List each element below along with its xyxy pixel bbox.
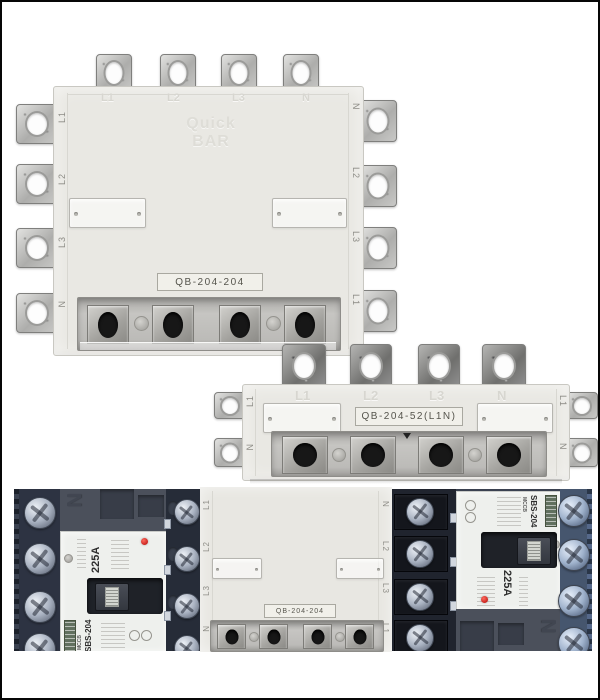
fine-print-lines — [519, 576, 528, 606]
embossed-terminal-label: L3 — [429, 388, 444, 403]
drop-shadow — [250, 479, 562, 484]
clear-terminal-cover — [336, 558, 384, 579]
busbar-contact — [152, 305, 194, 344]
molded-mark: N — [536, 619, 559, 633]
embossed-terminal-label: L1 — [295, 388, 310, 403]
terminal-screw — [558, 495, 590, 527]
busbar-contact — [284, 305, 326, 344]
terminal-window — [164, 611, 171, 621]
busbar-contact — [303, 624, 332, 649]
contact-hole — [295, 312, 315, 338]
terminal-lug — [16, 164, 58, 204]
breaker-toggle — [87, 578, 163, 614]
embossed-terminal-label: L1 — [101, 92, 114, 104]
busbar-contact — [87, 305, 129, 344]
edge-label: L2 — [202, 541, 211, 552]
edge-label: L1 — [202, 499, 211, 510]
lug-hole — [572, 442, 592, 463]
model-number: QB-204-204 — [175, 277, 244, 288]
contact-hole — [497, 443, 521, 467]
edge-label: L3 — [57, 236, 67, 248]
toggle-sticker — [105, 587, 119, 607]
cover-screw — [338, 212, 342, 216]
lug-hole — [367, 235, 390, 262]
terminal-window — [164, 519, 171, 529]
cover-screw — [74, 212, 78, 216]
lug-hole — [104, 60, 125, 86]
cover-screw — [216, 568, 219, 571]
contact-hole — [429, 443, 453, 467]
contact-channel — [77, 297, 341, 351]
fine-print-lines — [77, 538, 86, 568]
embossed-terminal-label: L2 — [167, 92, 180, 104]
fine-print-lines — [101, 620, 125, 648]
contact-hole — [361, 443, 385, 467]
cover-screw — [340, 568, 343, 571]
terminal-lug — [359, 165, 397, 207]
indicator-dot — [335, 632, 345, 642]
cover-screw — [377, 568, 380, 571]
toggle-sticker — [527, 541, 541, 561]
terminal-lug — [359, 290, 397, 332]
lug-hole — [168, 60, 189, 86]
brand-watermark-line1: Quick — [166, 115, 256, 133]
panel-seam — [348, 93, 349, 349]
type-label: MCCB — [521, 497, 527, 525]
molded-step — [498, 623, 524, 645]
fine-print-lines — [111, 537, 129, 569]
model-number: QB-204-204 — [276, 608, 324, 615]
molded-housing-top: N — [60, 489, 166, 531]
brand-watermark-line2: BAR — [166, 133, 256, 151]
terminal-lug — [482, 344, 526, 388]
edge-label: N — [381, 501, 390, 508]
certification-mark — [141, 630, 152, 641]
lug-hole — [25, 235, 49, 261]
contact-hole — [311, 629, 324, 644]
panel-screw — [64, 554, 73, 563]
model-label-plate: QB-204-52(L1N) — [355, 407, 463, 426]
contact-hole — [293, 443, 317, 467]
model-label: SBS-204 — [529, 495, 538, 529]
panel-seam — [67, 93, 68, 349]
certification-mark — [129, 630, 140, 641]
lug-hole — [220, 396, 240, 416]
indicator-dot — [468, 448, 482, 462]
busbar-contact — [418, 436, 464, 474]
cover-screw — [255, 568, 258, 571]
terminal-screw — [24, 497, 56, 529]
type-label: MCCB — [77, 622, 83, 650]
lug-hole — [291, 60, 312, 86]
terminal-screw — [24, 543, 56, 575]
model-label-plate: QB-204-204 — [264, 604, 336, 618]
brand-chip — [545, 495, 557, 527]
breaker-face-panel: SBS-204 MCCB 225A — [456, 491, 562, 611]
contact-hole — [353, 629, 366, 644]
edge-label: L1 — [558, 395, 568, 407]
molded-step — [138, 495, 164, 517]
terminal-screw — [406, 624, 434, 651]
mccb-breaker-left-photo: N 225A MCCB SBS-204 — [14, 489, 200, 651]
indicator-dot — [134, 316, 149, 331]
indicator-dot — [249, 632, 259, 642]
busbar-contact — [345, 624, 374, 649]
terminal-lug — [418, 344, 460, 388]
trip-indicator — [481, 596, 488, 603]
embossed-terminal-label: N — [302, 92, 310, 104]
terminal-lug — [359, 227, 397, 269]
busbar-contact — [350, 436, 396, 474]
lug-hole — [359, 352, 383, 380]
terminal-lug — [282, 344, 326, 388]
edge-label: L3 — [202, 585, 211, 596]
product-photo-collage: L1 L2 L3 N Quick BAR L1 L2 L3 N N L2 L3 … — [0, 0, 600, 700]
contact-channel — [271, 431, 547, 477]
terminal-screw — [174, 499, 200, 525]
molded-mark: N — [64, 493, 87, 507]
terminal-screw — [558, 585, 590, 617]
clear-terminal-cover — [212, 558, 262, 579]
clear-terminal-cover — [69, 198, 146, 228]
indicator-dot — [266, 316, 281, 331]
busbar-cover-body: L1 L2 L3 N L1 N L1 N QB-204-52(L1N) — [242, 384, 570, 481]
cover-screw — [332, 417, 336, 421]
model-label: SBS-204 — [84, 618, 93, 651]
lug-hole — [229, 60, 250, 86]
terminal-lug — [16, 104, 58, 144]
lug-hole — [367, 173, 390, 200]
clear-terminal-cover — [272, 198, 347, 228]
edge-label: N — [57, 300, 67, 308]
terminal-screw — [406, 583, 434, 611]
edge-label: L3 — [381, 583, 390, 594]
terminal-lug — [359, 100, 397, 142]
edge-label: L2 — [381, 541, 390, 552]
cover-screw — [544, 417, 548, 421]
busbar-contact — [259, 624, 288, 649]
edge-label: L3 — [351, 231, 361, 243]
lug-hole — [492, 352, 516, 380]
molded-housing-bottom: N — [456, 609, 560, 651]
certification-mark — [465, 500, 476, 511]
model-label-plate: QB-204-204 — [157, 273, 263, 291]
busbar-contact — [282, 436, 328, 474]
edge-label: L2 — [57, 173, 67, 185]
terminal-lug — [16, 293, 58, 333]
cover-screw — [137, 212, 141, 216]
terminal-screw — [174, 546, 200, 572]
lug-hole — [25, 111, 49, 137]
edge-label: L1 — [351, 294, 361, 306]
trip-indicator — [141, 538, 148, 545]
brand-chip — [64, 620, 76, 651]
lug-hole — [367, 108, 390, 135]
lug-hole — [427, 352, 451, 380]
busbar-contact — [217, 624, 246, 649]
terminal-screw — [558, 539, 590, 571]
edge-label: L1 — [245, 395, 255, 407]
busbar-contact — [486, 436, 532, 474]
terminal-lug — [566, 438, 598, 467]
contact-hole — [98, 312, 118, 338]
edge-label: N — [245, 443, 255, 451]
terminal-window — [164, 565, 171, 575]
terminal-screw — [174, 593, 200, 619]
lug-hole — [25, 171, 49, 197]
busbar-contact — [219, 305, 261, 344]
embossed-terminal-label: N — [497, 388, 506, 403]
breaker-toggle — [481, 532, 557, 568]
terminal-screw — [558, 627, 590, 651]
embossed-terminal-label: L2 — [363, 388, 378, 403]
lug-hole — [367, 298, 390, 325]
terminal-screw — [406, 540, 434, 568]
terminal-lug — [16, 228, 58, 268]
molded-step — [460, 621, 494, 651]
busbar-unit-bottom-center-photo: L1 L2 L3 N N L2 L3 L1 QB-204-204 — [200, 487, 392, 652]
terminal-lug — [566, 392, 598, 419]
lug-hole — [572, 396, 592, 416]
fine-print-lines — [497, 496, 521, 526]
clear-terminal-cover — [263, 403, 341, 433]
indicator-dot — [332, 448, 346, 462]
molded-step — [100, 489, 134, 519]
edge-label: L1 — [57, 111, 67, 123]
panel-seam — [255, 389, 256, 476]
alignment-marker — [403, 433, 411, 439]
cover-screw — [277, 212, 281, 216]
model-number: QB-204-52(L1N) — [362, 411, 457, 422]
contact-hole — [230, 312, 250, 338]
lug-hole — [292, 352, 316, 380]
breaker-face-panel: 225A MCCB SBS-204 — [60, 531, 168, 651]
cover-screw — [268, 417, 272, 421]
terminal-screw — [24, 591, 56, 623]
brand-watermark: Quick BAR — [166, 115, 256, 152]
lug-hole — [220, 442, 240, 463]
mccb-breaker-right-photo: SBS-204 MCCB 225A N — [392, 489, 592, 651]
cover-screw — [482, 417, 486, 421]
busbar-cover-body: L1 L2 L3 N Quick BAR L1 L2 L3 N N L2 L3 … — [53, 86, 364, 356]
terminal-lug — [350, 344, 392, 388]
contact-hole — [163, 312, 183, 338]
lug-hole — [25, 300, 49, 326]
edge-label: N — [558, 443, 568, 451]
edge-label: N — [351, 103, 361, 111]
contact-channel — [210, 620, 384, 652]
embossed-terminal-label: L3 — [232, 92, 245, 104]
contact-hole — [267, 629, 280, 644]
certification-mark — [465, 512, 476, 523]
terminal-screw — [406, 498, 434, 526]
rating-label: 225A — [501, 570, 513, 608]
edge-label: L2 — [351, 167, 361, 179]
contact-hole — [225, 629, 238, 644]
clear-terminal-cover — [477, 403, 553, 433]
panel-seam — [556, 389, 557, 476]
rating-label: 225A — [90, 535, 102, 573]
